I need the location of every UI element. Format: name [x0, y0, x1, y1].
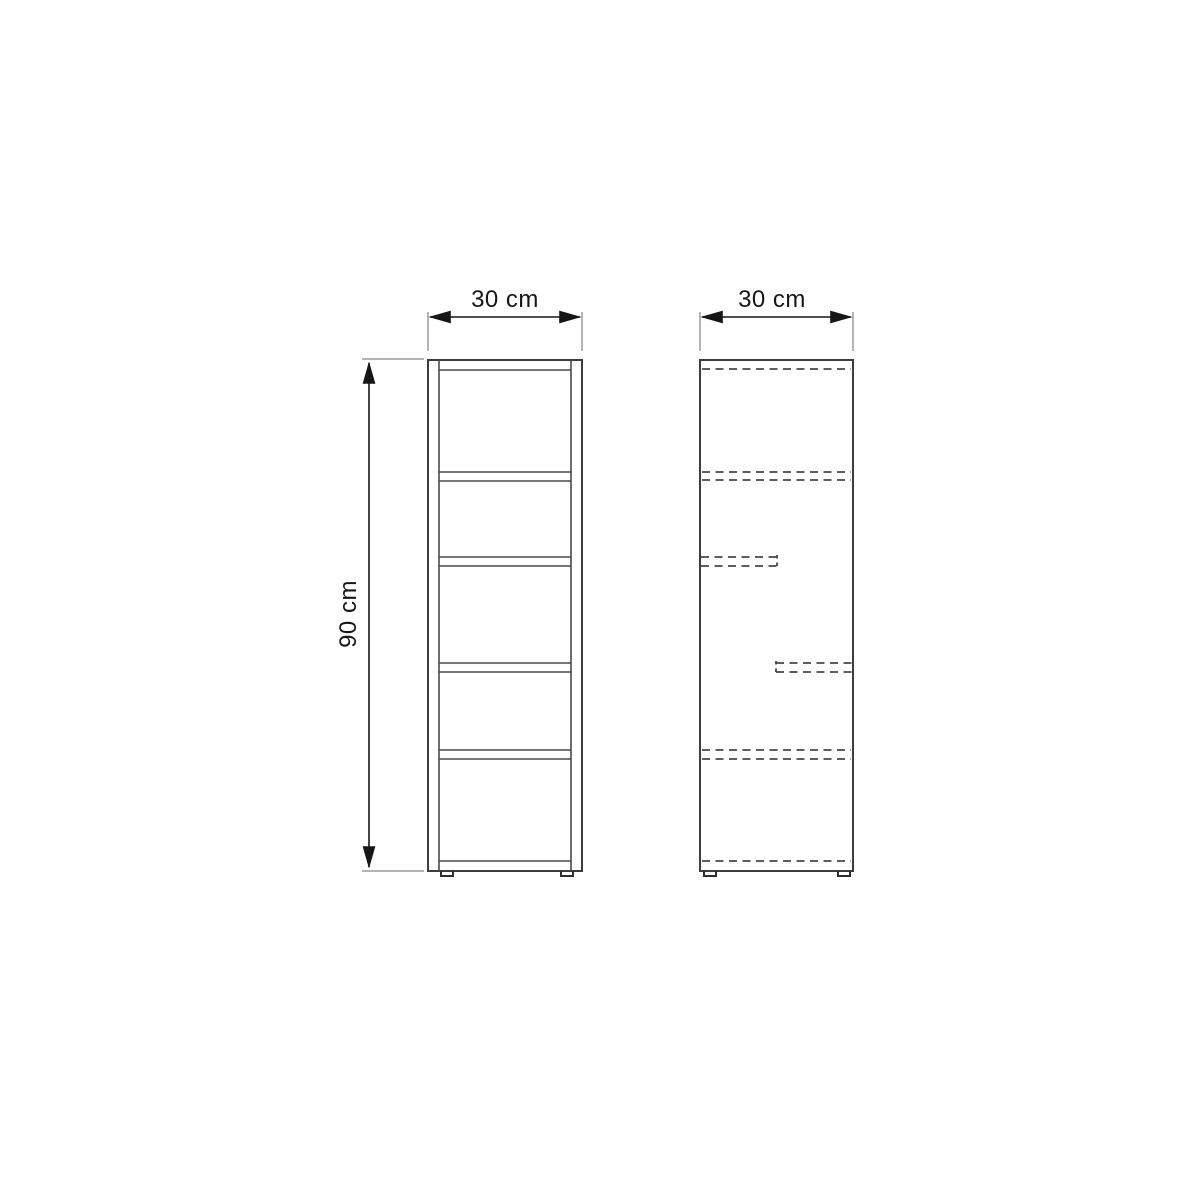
side-depth-label: 30 cm	[738, 286, 806, 313]
side-hidden-shelf-3	[776, 661, 852, 674]
side-hidden-shelf-1	[702, 472, 851, 480]
drawing-canvas: 30 cm 30 cm 90 cm	[0, 0, 1200, 1200]
front-view	[428, 360, 582, 876]
height-label: 90 cm	[335, 580, 362, 648]
front-width-label: 30 cm	[471, 286, 539, 313]
side-view	[700, 360, 853, 876]
side-depth-dimension: 30 cm	[700, 286, 853, 351]
front-shelf-3	[439, 663, 571, 672]
front-width-dimension: 30 cm	[428, 286, 582, 351]
height-dimension: 90 cm	[335, 359, 424, 871]
front-shelf-4	[439, 750, 571, 759]
side-hidden-shelf-4	[702, 750, 851, 759]
side-hidden-shelf-2	[701, 555, 777, 568]
side-view-outline	[700, 360, 853, 871]
front-shelf-2	[439, 557, 571, 566]
front-view-outline	[428, 360, 582, 871]
front-shelf-1	[439, 472, 571, 481]
shelf-dimension-drawing: 30 cm 30 cm 90 cm	[0, 0, 1200, 1200]
